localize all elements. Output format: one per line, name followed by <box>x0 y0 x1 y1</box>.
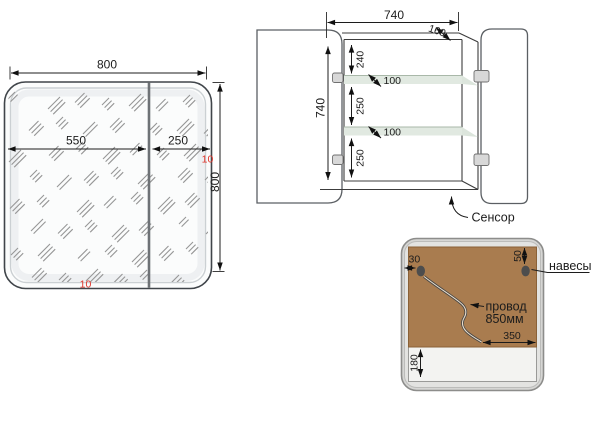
dim-value: 180 <box>409 354 421 372</box>
glass-shelf-bottom <box>344 127 478 137</box>
hatch-mark <box>211 227 223 239</box>
dim-value: 240 <box>355 51 367 69</box>
dim-value: 740 <box>314 98 328 118</box>
offset-bottom-value: 10 <box>80 279 92 291</box>
technical-drawing: 800 550 250 800 10 10 <box>0 0 600 425</box>
shelf-perspective <box>462 127 478 137</box>
hanger-left <box>417 266 425 277</box>
dim-value: 250 <box>355 149 367 167</box>
wire-length-label: 850мм <box>486 312 524 326</box>
left-door <box>257 30 342 203</box>
glass-shelf-top <box>344 76 478 86</box>
back-view: 30 50 навесы провод 850мм 350 180 <box>402 239 592 391</box>
shelf-band <box>344 76 462 85</box>
cabinet-side-view: 740 160 740 240 250 250 100 100 <box>257 8 528 225</box>
hinge-right-bottom <box>474 154 489 166</box>
dim-value: 50 <box>512 250 524 262</box>
mirror-outline <box>5 82 212 289</box>
dim-value: 550 <box>66 134 86 148</box>
hatch-mark <box>212 276 222 286</box>
dim-value: 250 <box>168 134 188 148</box>
dim-value: 100 <box>384 75 402 87</box>
shelf-band <box>344 127 462 136</box>
dim-value: 740 <box>384 8 404 22</box>
right-door <box>481 29 528 204</box>
dim-bottom-gap: 250 <box>352 139 367 178</box>
dim-hanger-top-offset: 50 <box>512 248 525 264</box>
dim-value: 800 <box>208 172 222 192</box>
dim-cabinet-depth: 160 <box>427 23 451 41</box>
dim-value: 30 <box>409 254 421 266</box>
cabinet-bottom-right-diagonal <box>462 181 478 190</box>
hinge-left-top <box>333 73 344 83</box>
dim-value: 160 <box>427 23 448 40</box>
dim-front-width: 800 <box>10 58 207 80</box>
dim-value: 100 <box>384 127 402 139</box>
dim-value: 350 <box>503 330 521 342</box>
dim-mid-gap: 250 <box>352 87 367 125</box>
offset-right-value: 10 <box>202 154 214 166</box>
hanger-right <box>521 266 529 277</box>
hangers-label: навесы <box>549 259 592 273</box>
sensor-label: Сенсор <box>472 211 515 225</box>
hinge-right-top <box>474 71 489 83</box>
sensor-leader-line <box>452 197 469 218</box>
front-view: 800 550 250 800 10 10 <box>5 58 225 293</box>
dim-value: 800 <box>97 58 117 72</box>
drawing-canvas: 800 550 250 800 10 10 <box>0 0 600 425</box>
dim-top-gap: 240 <box>352 45 367 74</box>
dim-value: 250 <box>355 97 367 115</box>
hinge-left-bottom <box>333 155 344 165</box>
